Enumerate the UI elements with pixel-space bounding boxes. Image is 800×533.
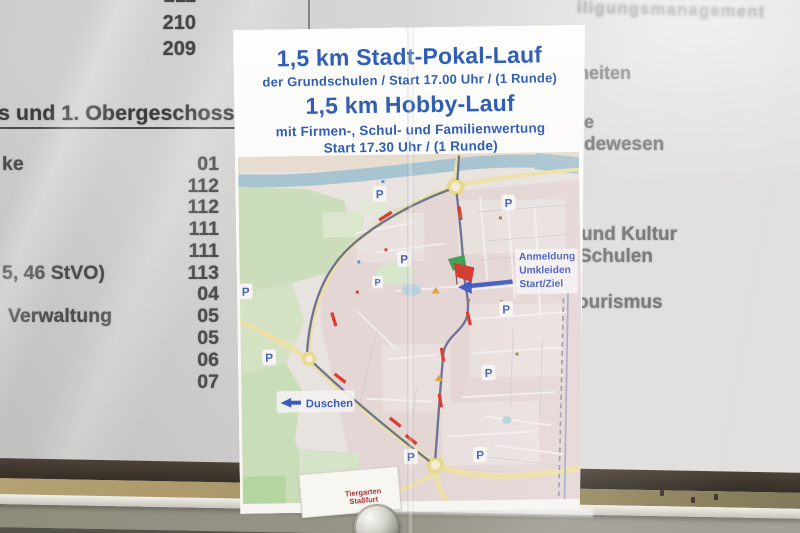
board-right-text: e	[584, 112, 594, 133]
room-number: 209	[130, 38, 196, 61]
room-number: 211	[130, 0, 196, 8]
directory-row: 5, 46 StVO)113	[0, 262, 219, 285]
display-case-photo: 211 210 209 s und 1. Obergeschoss) ke01 …	[0, 0, 800, 533]
board-right-text: dewesen	[584, 134, 664, 156]
race-flyer: 1,5 km Stadt-Pokal-Lauf der Grundschulen…	[233, 25, 592, 514]
course-map: Anmeldung Umkleiden Start/Ziel Duschen P…	[238, 152, 584, 504]
debris-speck	[714, 494, 718, 500]
directory-heading: s und 1. Obergeschoss)	[0, 101, 246, 129]
directory-row: Verwaltung05	[0, 305, 219, 328]
board-right-text: ourismus	[577, 292, 663, 314]
directory-row: 06	[0, 349, 219, 372]
debris-speck	[660, 490, 664, 496]
directory-row: 07	[0, 371, 219, 394]
board-right-text: und Kultur	[581, 224, 677, 246]
directory-row: 111	[0, 218, 219, 241]
directory-row: 05	[0, 327, 219, 350]
board-right-text: heiten	[578, 63, 631, 84]
flyer-header: 1,5 km Stadt-Pokal-Lauf der Grundschulen…	[233, 40, 587, 158]
directory-row: 04	[0, 283, 219, 306]
directory-row: ke01	[0, 153, 219, 176]
directory-row: 111	[0, 240, 219, 263]
room-number: 210	[130, 12, 196, 35]
board-right-text: iligungsmanagement	[577, 0, 766, 22]
directory-row: 112	[0, 175, 219, 198]
debris-speck	[691, 497, 695, 503]
flyer-title-2: 1,5 km Hobby-Lauf	[234, 87, 586, 123]
board-right-text: Schulen	[579, 246, 653, 268]
directory-row: 112	[0, 196, 219, 219]
photo-tint-overlay	[238, 152, 584, 504]
